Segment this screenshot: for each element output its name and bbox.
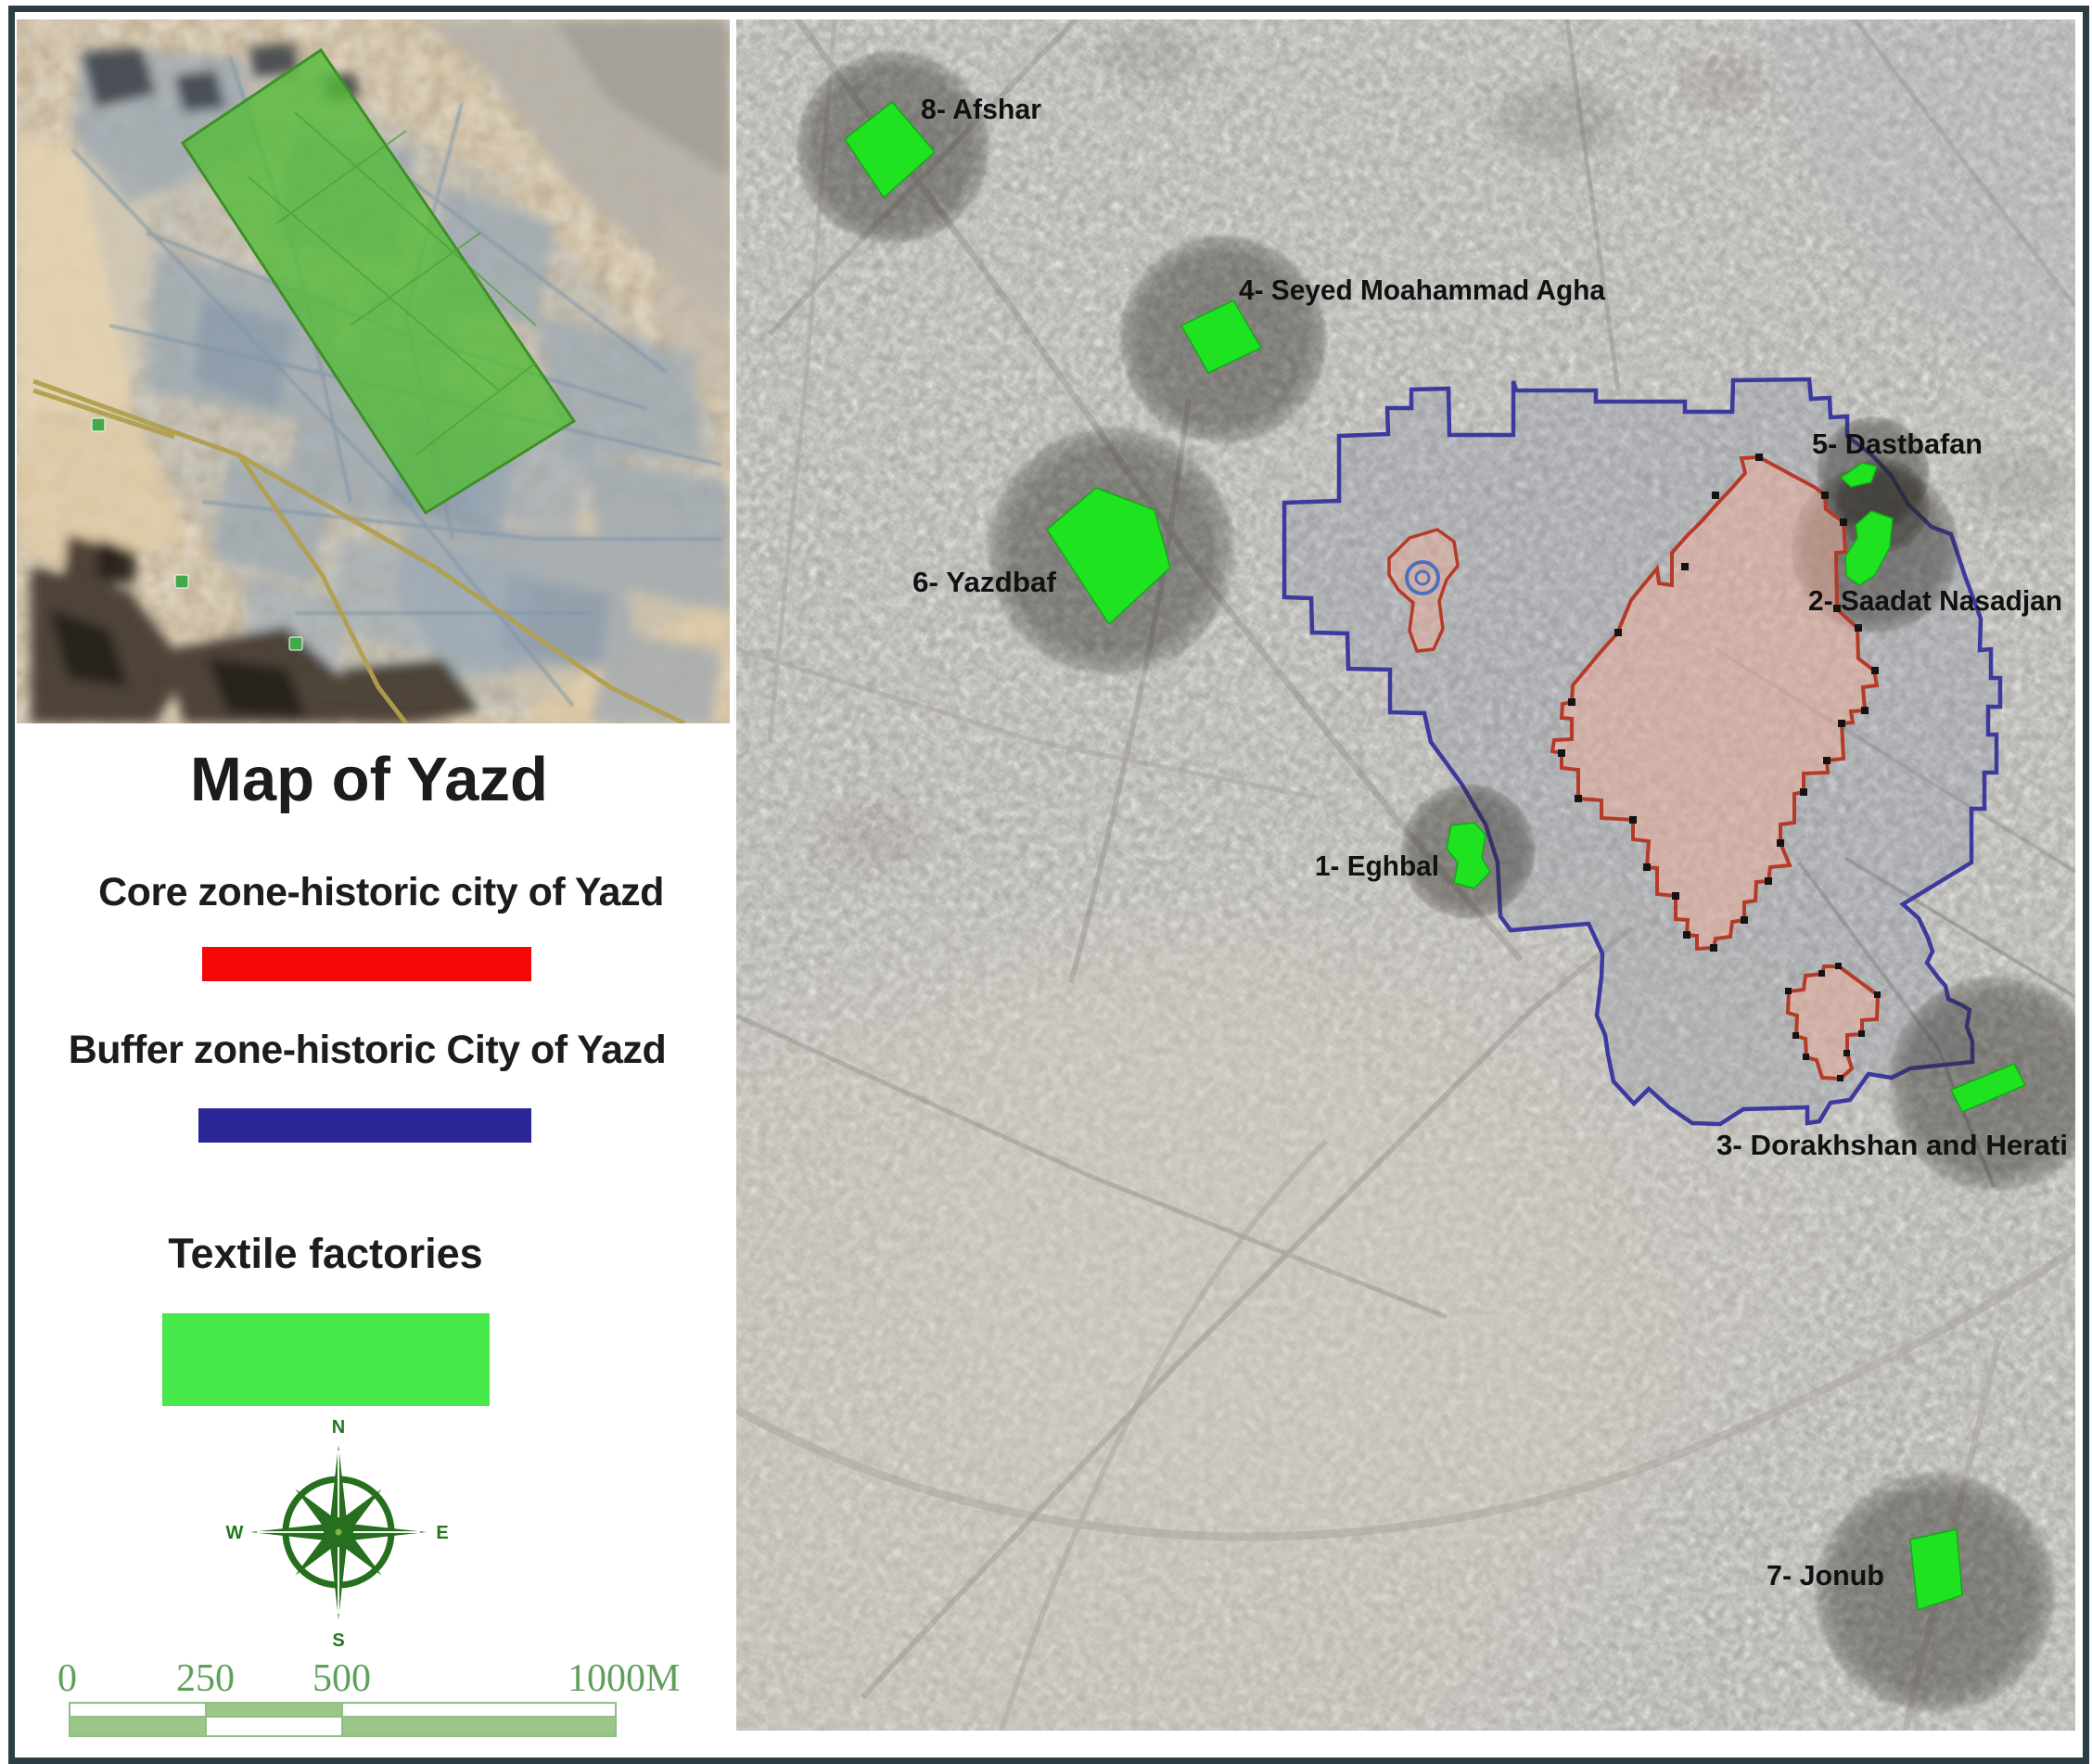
svg-text:8- Afshar: 8- Afshar (921, 93, 1041, 125)
svg-text:7- Jonub: 7- Jonub (1767, 1559, 1884, 1591)
svg-text:6- Yazdbaf: 6- Yazdbaf (912, 566, 1057, 598)
svg-text:1- Eghbal: 1- Eghbal (1315, 850, 1439, 882)
svg-text:3- Dorakhshan and Herati: 3- Dorakhshan and Herati (1716, 1129, 2068, 1161)
svg-text:N: N (332, 1417, 345, 1438)
svg-text:4- Seyed Moahammad Agha: 4- Seyed Moahammad Agha (1239, 274, 1606, 306)
svg-text:W: W (226, 1523, 244, 1543)
svg-text:5- Dastbafan: 5- Dastbafan (1812, 428, 1983, 460)
svg-text:E: E (436, 1523, 448, 1543)
svg-text:S: S (332, 1630, 344, 1650)
svg-text:2- Saadat Nasadjan: 2- Saadat Nasadjan (1808, 584, 2062, 617)
